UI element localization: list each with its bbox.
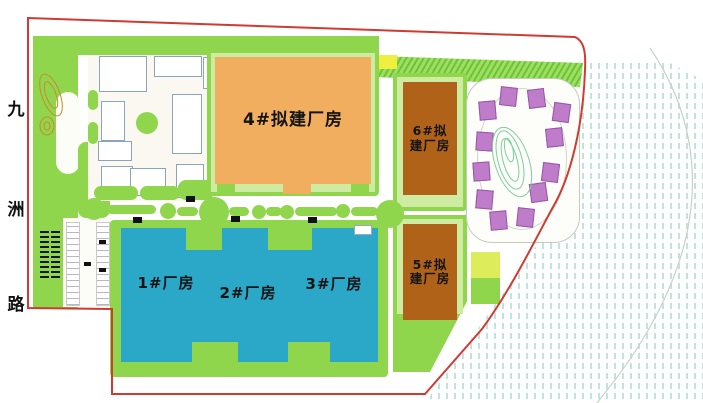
- road-median: [351, 207, 378, 216]
- factory123-bottom-court: [288, 342, 330, 362]
- villa-building: [489, 210, 508, 230]
- factory6-label-line2: 建厂房: [410, 139, 451, 153]
- villa-building: [552, 102, 571, 123]
- green-median: [43, 198, 77, 214]
- factory2-label: 2#厂房: [218, 285, 278, 303]
- parking-tick-column: [51, 228, 60, 278]
- road-median: [177, 207, 198, 216]
- roadside-structure: [186, 196, 195, 202]
- parking-stall-column: [96, 222, 110, 306]
- parked-car-mark: [99, 240, 106, 244]
- parking-tick-column: [40, 228, 49, 278]
- green-corner: [140, 186, 180, 200]
- factory5-label-line2: 建厂房: [410, 272, 451, 286]
- factory4-entrance-bump: [283, 184, 311, 194]
- road-name-char: 九: [6, 97, 26, 117]
- factory123-top-court: [268, 228, 312, 250]
- green-corner: [88, 122, 98, 144]
- factory3-label: 3#厂房: [304, 276, 364, 294]
- road-name-char: 洲: [6, 197, 26, 217]
- factory4-label: 4#拟建厂房: [215, 57, 371, 184]
- villa-building: [545, 127, 564, 148]
- factory6-label-line1: 6#拟: [413, 124, 448, 138]
- road-median: [229, 207, 249, 216]
- outlined-building: [154, 56, 202, 77]
- villa-building: [475, 189, 494, 209]
- outlined-building: [172, 94, 202, 154]
- villa-building: [472, 161, 490, 181]
- roundabout-circle: [336, 204, 350, 218]
- factory1-label: 1#厂房: [136, 275, 196, 293]
- parking-stall-column: [66, 222, 80, 306]
- factory4-building: 4#拟建厂房: [215, 57, 371, 184]
- pond: [56, 92, 80, 174]
- villa-building: [541, 162, 560, 183]
- road-median: [107, 205, 156, 214]
- roundabout-circle: [252, 205, 266, 219]
- outlined-building: [101, 101, 125, 141]
- villa-building: [478, 100, 497, 120]
- roadside-structure: [231, 216, 240, 222]
- road-median: [295, 207, 337, 216]
- factory123-top-court: [186, 228, 222, 250]
- villa-building: [516, 207, 535, 228]
- villa-building: [499, 86, 518, 107]
- site-plan-canvas: 4#拟建厂房 6#拟 建厂房 5#拟 建厂房: [0, 0, 703, 403]
- villa-building: [475, 131, 493, 151]
- green-patch-lower: [471, 278, 500, 304]
- factory5-building: 5#拟 建厂房: [403, 224, 457, 320]
- factory123-bottom-court: [192, 342, 238, 362]
- villa-building: [529, 182, 548, 203]
- roundabout-circle: [280, 205, 294, 219]
- factory5-label-line1: 5#拟: [413, 258, 448, 272]
- courtyard-tree-circle: [136, 112, 158, 134]
- factory6-building: 6#拟 建厂房: [403, 82, 457, 195]
- villa-building: [527, 88, 546, 109]
- roadside-structure: [133, 217, 142, 223]
- small-white-structure: [354, 225, 372, 235]
- green-corner: [94, 186, 138, 200]
- outlined-building: [98, 141, 132, 161]
- yellow-structure: [379, 55, 397, 69]
- parked-car-mark: [99, 268, 106, 272]
- roundabout-circle: [160, 203, 176, 219]
- road-name-char: 路: [6, 292, 26, 312]
- roadside-structure: [308, 217, 317, 223]
- roundabout-circle: [83, 198, 105, 220]
- outlined-building: [99, 56, 147, 92]
- road-median: [266, 207, 282, 216]
- parked-car-mark: [84, 262, 91, 266]
- green-corner: [88, 90, 98, 110]
- green-patch-upper: [471, 252, 500, 278]
